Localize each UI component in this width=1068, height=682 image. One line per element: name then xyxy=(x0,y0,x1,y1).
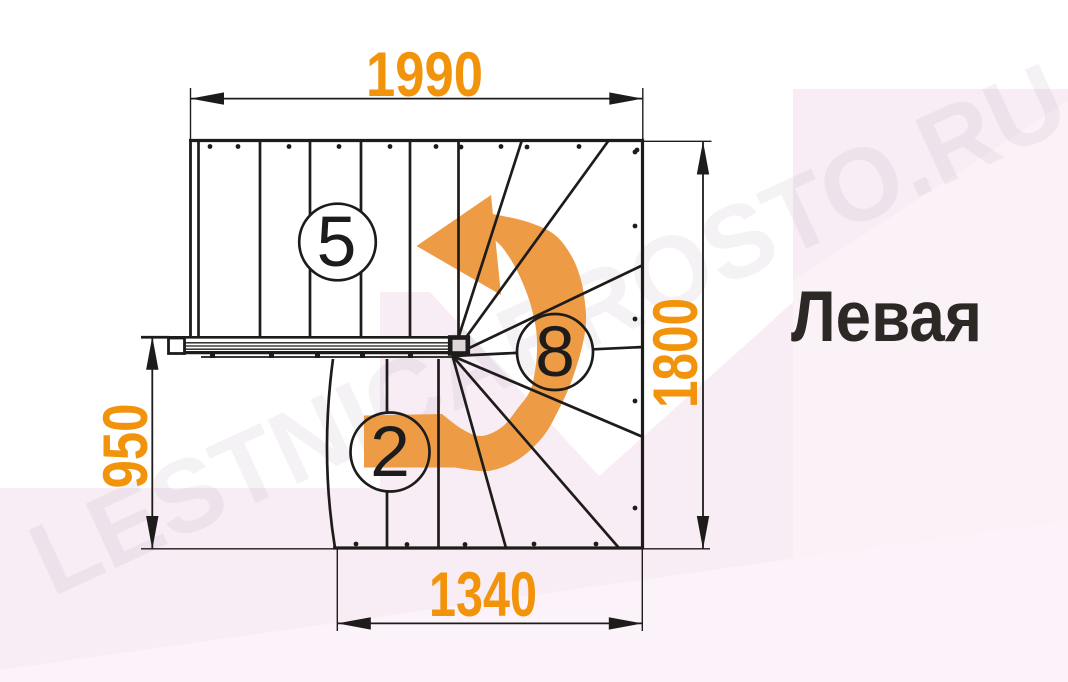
svg-text:1990: 1990 xyxy=(366,40,483,110)
svg-text:1800: 1800 xyxy=(641,298,711,408)
svg-text:1340: 1340 xyxy=(429,560,537,630)
svg-text:2: 2 xyxy=(370,412,410,492)
svg-text:Левая: Левая xyxy=(791,278,982,357)
svg-text:8: 8 xyxy=(535,312,575,392)
svg-text:950: 950 xyxy=(91,404,161,489)
svg-text:5: 5 xyxy=(317,202,357,282)
